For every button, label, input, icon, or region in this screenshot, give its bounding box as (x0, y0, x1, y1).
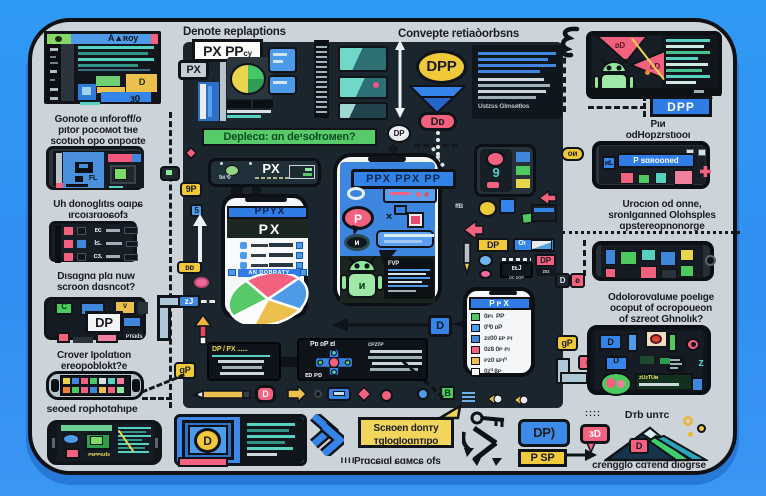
svg-text:ᴅD: ᴅD (615, 41, 626, 50)
svg-text:ᴎ: ᴎ (359, 280, 366, 292)
